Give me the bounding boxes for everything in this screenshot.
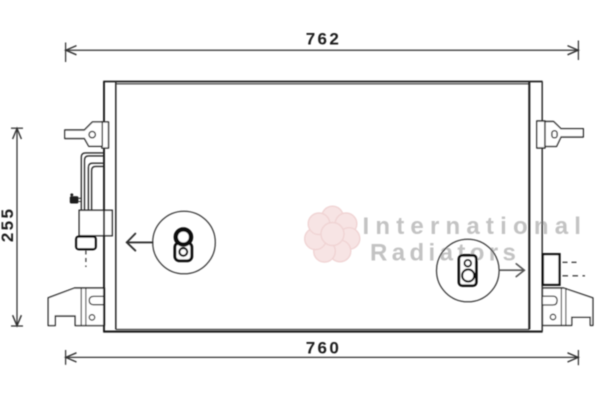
svg-text:762: 762 (306, 30, 342, 49)
svg-text:760: 760 (306, 339, 342, 358)
svg-text:International: International (363, 213, 588, 240)
svg-text:255: 255 (0, 207, 17, 243)
